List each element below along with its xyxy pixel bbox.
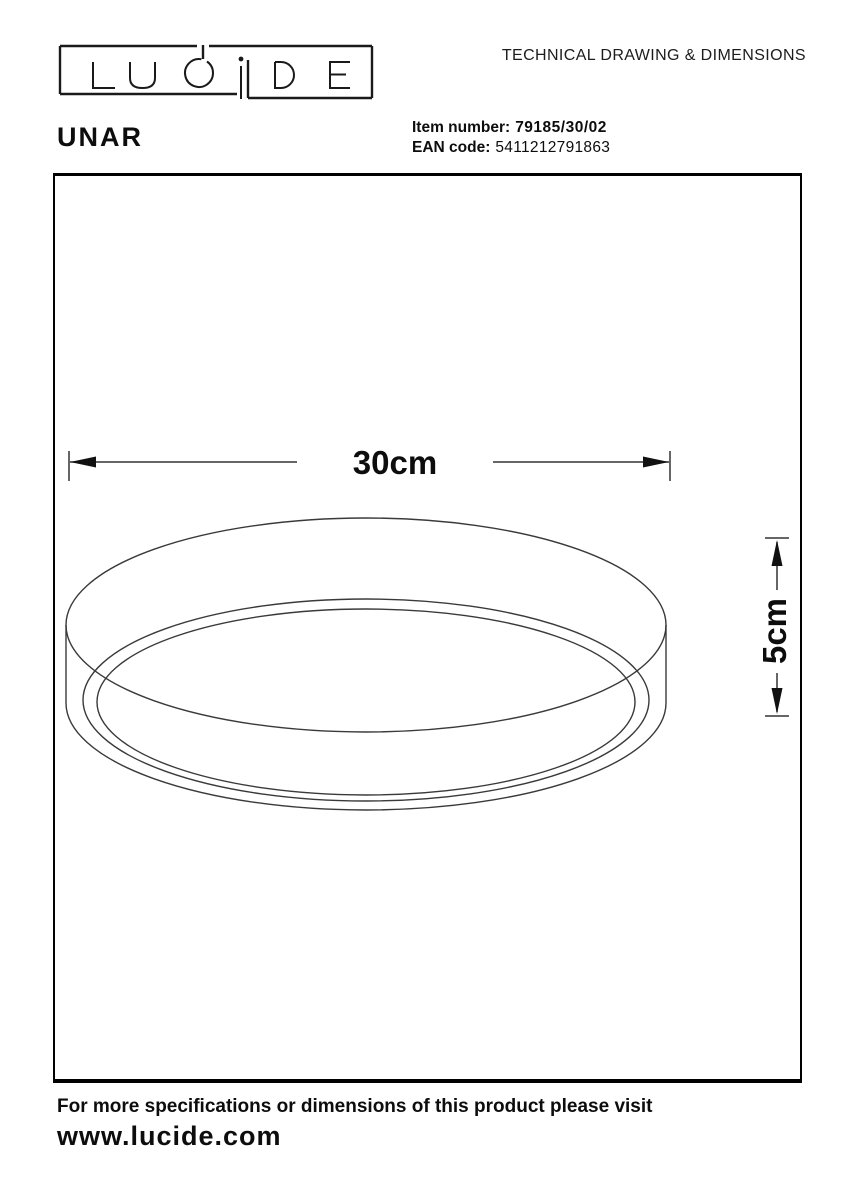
ceiling-lamp-outline [66,518,666,810]
ean-code-row: EAN code:5411212791863 [412,138,610,158]
item-number-row: Item number:79185/30/02 [412,118,610,138]
technical-drawing-sheet: TECHNICAL DRAWING & DIMENSIONS UNAR Item… [0,0,848,1200]
height-dimension-label: 5cm [756,598,793,664]
arrow-right-icon [643,457,669,468]
ean-code-value: 5411212791863 [495,139,610,156]
product-name: UNAR [57,122,143,153]
drawing-frame: 30cm 5cm [53,173,802,1083]
lamp-diffuser [97,609,635,795]
item-number-value: 79185/30/02 [515,119,607,136]
width-dimension-label: 30cm [353,444,437,481]
lamp-technical-drawing: 30cm 5cm [55,176,800,1079]
logo-letters [93,57,350,99]
lucide-logo [57,42,375,102]
product-id-block: Item number:79185/30/02 EAN code:5411212… [412,118,610,158]
arrow-up-icon [772,540,783,566]
page-title: TECHNICAL DRAWING & DIMENSIONS [502,47,806,65]
item-number-label: Item number: [412,119,510,136]
logo-frame [60,45,372,98]
lamp-bezel-outer [83,599,649,801]
arrow-left-icon [70,457,96,468]
ean-code-label: EAN code: [412,139,490,156]
lamp-bottom-edge [66,703,666,810]
lamp-top-rim [66,518,666,732]
website-link[interactable]: www.lucide.com [57,1121,282,1152]
footer-note: For more specifications or dimensions of… [57,1096,652,1118]
arrow-down-icon [772,688,783,714]
